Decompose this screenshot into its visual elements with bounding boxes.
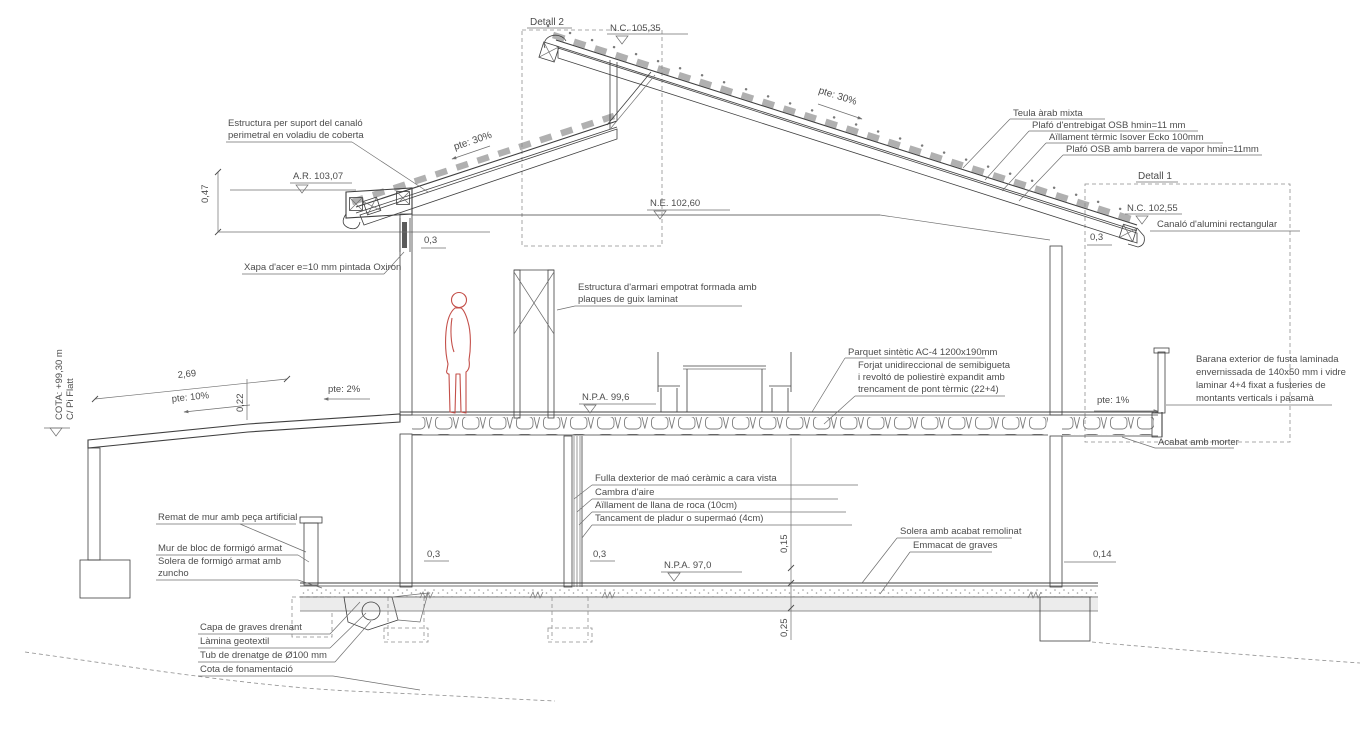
svg-text:0,14: 0,14 bbox=[1093, 549, 1112, 560]
callout-forjat: Forjat unidireccional de semibigueta i r… bbox=[824, 360, 1011, 424]
svg-text:N.E. 102,60: N.E. 102,60 bbox=[650, 198, 700, 209]
dim-wall-top-left: 0,3 bbox=[421, 235, 446, 248]
terrace-ramp bbox=[88, 414, 400, 448]
steel-plate bbox=[402, 222, 407, 248]
retaining-wall bbox=[80, 448, 130, 598]
callout-acabat-morter: Acabat amb morter bbox=[1122, 437, 1239, 448]
svg-text:laminar 4+4 fixat a fusteries: laminar 4+4 fixat a fusteries de bbox=[1196, 380, 1326, 391]
svg-text:pte: 30%: pte: 30% bbox=[452, 130, 493, 153]
closet-armari bbox=[514, 270, 554, 418]
svg-text:Xapa d'acer e=10 mm pintada Ox: Xapa d'acer e=10 mm pintada Oxiron bbox=[244, 262, 401, 273]
interior-wall bbox=[564, 436, 582, 587]
svg-text:envernissada de 140x50 mm i vi: envernissada de 140x50 mm i vidre bbox=[1196, 367, 1346, 378]
left-exterior-wall bbox=[400, 214, 412, 587]
callout-plafo-osb: Plafó OSB amb barrera de vapor hmin=11mm bbox=[1066, 144, 1259, 155]
ceiling bbox=[412, 215, 1050, 240]
svg-text:pte: 1%: pte: 1% bbox=[1097, 395, 1130, 406]
svg-text:Acabat amb morter: Acabat amb morter bbox=[1158, 437, 1239, 448]
level-ar: A.R. 103,07 bbox=[230, 171, 356, 193]
dim-wall-bottom-left: 0,3 bbox=[424, 549, 449, 561]
svg-text:Solera amb acabat remolinat: Solera amb acabat remolinat bbox=[900, 526, 1022, 537]
svg-text:0,15: 0,15 bbox=[779, 535, 790, 554]
svg-text:montants verticals i pasamà: montants verticals i pasamà bbox=[1196, 393, 1314, 404]
svg-text:0,25: 0,25 bbox=[779, 619, 790, 638]
section-drawing: Detall 2 Detall 1 bbox=[0, 0, 1360, 755]
svg-text:perimetral en voladiu de cober: perimetral en voladiu de coberta bbox=[228, 130, 364, 141]
svg-text:plaques de guix laminat: plaques de guix laminat bbox=[578, 294, 678, 305]
garden-wall bbox=[292, 517, 332, 637]
svg-text:Barana exterior de fusta lamin: Barana exterior de fusta laminada bbox=[1196, 354, 1339, 365]
svg-text:Làmina geotextil: Làmina geotextil bbox=[200, 636, 269, 647]
railing bbox=[1154, 348, 1169, 413]
svg-text:zuncho: zuncho bbox=[158, 568, 189, 579]
detail-1-label: Detall 1 bbox=[1138, 171, 1172, 182]
svg-text:i revoltó de poliestirè expand: i revoltó de poliestirè expandit amb bbox=[858, 372, 1005, 383]
svg-text:Emmacat de graves: Emmacat de graves bbox=[913, 540, 998, 551]
svg-text:Estructura per suport del cana: Estructura per suport del canaló bbox=[228, 118, 363, 129]
callout-aillament-roca: Aïllament de llana de roca (10cm) bbox=[595, 500, 737, 511]
callout-cota-fonamentacio: Cota de fonamentació bbox=[198, 664, 420, 690]
svg-text:Forjat unidireccional de semib: Forjat unidireccional de semibigueta bbox=[858, 360, 1011, 371]
svg-text:0,22: 0,22 bbox=[235, 394, 246, 413]
svg-text:trencament de pont tèrmic (22+: trencament de pont tèrmic (22+4) bbox=[858, 384, 999, 395]
callout-aillament-coberta: Aïllament tèrmic Isover Ecko 100mm bbox=[1049, 132, 1204, 143]
svg-text:0,3: 0,3 bbox=[593, 549, 606, 560]
level-ne-ceiling: N.E. 102,60 bbox=[647, 198, 730, 219]
callout-xapa-acer: Xapa d'acer e=10 mm pintada Oxiron bbox=[242, 252, 404, 274]
svg-text:Mur de bloc de formigó armat: Mur de bloc de formigó armat bbox=[158, 543, 282, 554]
svg-text:C/ Pi Flatt: C/ Pi Flatt bbox=[65, 378, 76, 420]
dim-wall-bottom-mid: 0,3 bbox=[590, 549, 615, 561]
level-ar-text: A.R. 103,07 bbox=[293, 171, 343, 182]
street-level: COTA: +99,30 m C/ Pi Flatt bbox=[44, 349, 76, 436]
dim-ramp-drop: 0,22 bbox=[235, 379, 247, 420]
level-nc-gutter-text: N.C. 102,55 bbox=[1127, 203, 1178, 214]
svg-text:Estructura d'armari empotrat f: Estructura d'armari empotrat formada amb bbox=[578, 282, 757, 293]
svg-text:pte: 2%: pte: 2% bbox=[328, 384, 361, 395]
callout-barana: Barana exterior de fusta laminada envern… bbox=[1166, 354, 1346, 405]
svg-text:Parquet sintètic AC-4 1200x190: Parquet sintètic AC-4 1200x190mm bbox=[848, 347, 998, 358]
callout-teula: Teula àrab mixta bbox=[1013, 108, 1083, 119]
svg-text:Cota de fonamentació: Cota de fonamentació bbox=[200, 664, 293, 675]
callout-wall-layers: Fulla dexterior de maó ceràmic a cara vi… bbox=[574, 473, 858, 538]
dim-balcony-edge: 0,14 bbox=[1064, 549, 1116, 562]
callout-roof-layers: Teula àrab mixta Plafó d'entrebigat OSB … bbox=[963, 108, 1262, 201]
callout-cambra: Cambra d'aire bbox=[595, 487, 654, 498]
svg-text:COTA: +99,30 m: COTA: +99,30 m bbox=[54, 349, 65, 420]
svg-text:Tub de drenatge de Ø100 mm: Tub de drenatge de Ø100 mm bbox=[200, 650, 327, 661]
svg-text:Solera de formigó armat amb: Solera de formigó armat amb bbox=[158, 556, 281, 567]
callout-plafo-entrebigat: Plafó d'entrebigat OSB hmin=11 mm bbox=[1032, 120, 1186, 131]
level-npa-floor: N.P.A. 99,6 bbox=[579, 392, 656, 413]
terrain-line-right bbox=[1092, 642, 1360, 663]
svg-text:pte: 30%: pte: 30% bbox=[817, 85, 858, 107]
svg-text:Remat de mur amb peça artifici: Remat de mur amb peça artificial bbox=[158, 512, 297, 523]
svg-text:0,3: 0,3 bbox=[424, 235, 437, 246]
chair-left bbox=[658, 352, 680, 412]
balcony bbox=[1062, 412, 1162, 437]
svg-text:N.P.A. 99,6: N.P.A. 99,6 bbox=[582, 392, 629, 403]
callout-armari: Estructura d'armari empotrat formada amb… bbox=[557, 282, 757, 310]
level-nc-ridge: N.C. 105,35 bbox=[607, 23, 688, 44]
callout-canalo-alumini: Canaló d'alumini rectangular bbox=[1150, 219, 1300, 231]
table bbox=[683, 366, 766, 412]
roof-right-slope bbox=[539, 26, 1137, 243]
level-npa-ground: N.P.A. 97,0 bbox=[661, 560, 742, 581]
svg-text:Canaló d'alumini rectangular: Canaló d'alumini rectangular bbox=[1157, 219, 1277, 230]
slope-terrace: pte: 2% bbox=[324, 384, 370, 399]
right-exterior-wall bbox=[1050, 246, 1062, 587]
svg-text:2,69: 2,69 bbox=[177, 368, 197, 381]
slope-balcony: pte: 1% bbox=[1094, 395, 1158, 411]
ground-slab bbox=[300, 583, 1098, 611]
callout-fulla: Fulla dexterior de maó ceràmic a cara vi… bbox=[595, 473, 777, 484]
slope-roof-right: pte: 30% bbox=[817, 85, 862, 119]
callout-tancament: Tancament de pladur o supermaó (4cm) bbox=[595, 513, 763, 524]
human-figure bbox=[446, 293, 471, 414]
gutter-right bbox=[1119, 224, 1144, 247]
svg-text:Capa de graves drenant: Capa de graves drenant bbox=[200, 622, 302, 633]
chair-right bbox=[769, 352, 791, 412]
svg-text:pte: 10%: pte: 10% bbox=[171, 390, 210, 405]
svg-text:0,3: 0,3 bbox=[1090, 232, 1103, 243]
dim-047-text: 0,47 bbox=[200, 185, 211, 204]
svg-text:N.C. 105,35: N.C. 105,35 bbox=[610, 23, 661, 34]
svg-text:N.P.A. 97,0: N.P.A. 97,0 bbox=[664, 560, 711, 571]
callout-solera-zuncho: Solera de formigó armat amb zuncho bbox=[156, 556, 322, 588]
svg-text:0,3: 0,3 bbox=[427, 549, 440, 560]
callout-solera-remolinat: Solera amb acabat remolinat bbox=[862, 526, 1022, 583]
